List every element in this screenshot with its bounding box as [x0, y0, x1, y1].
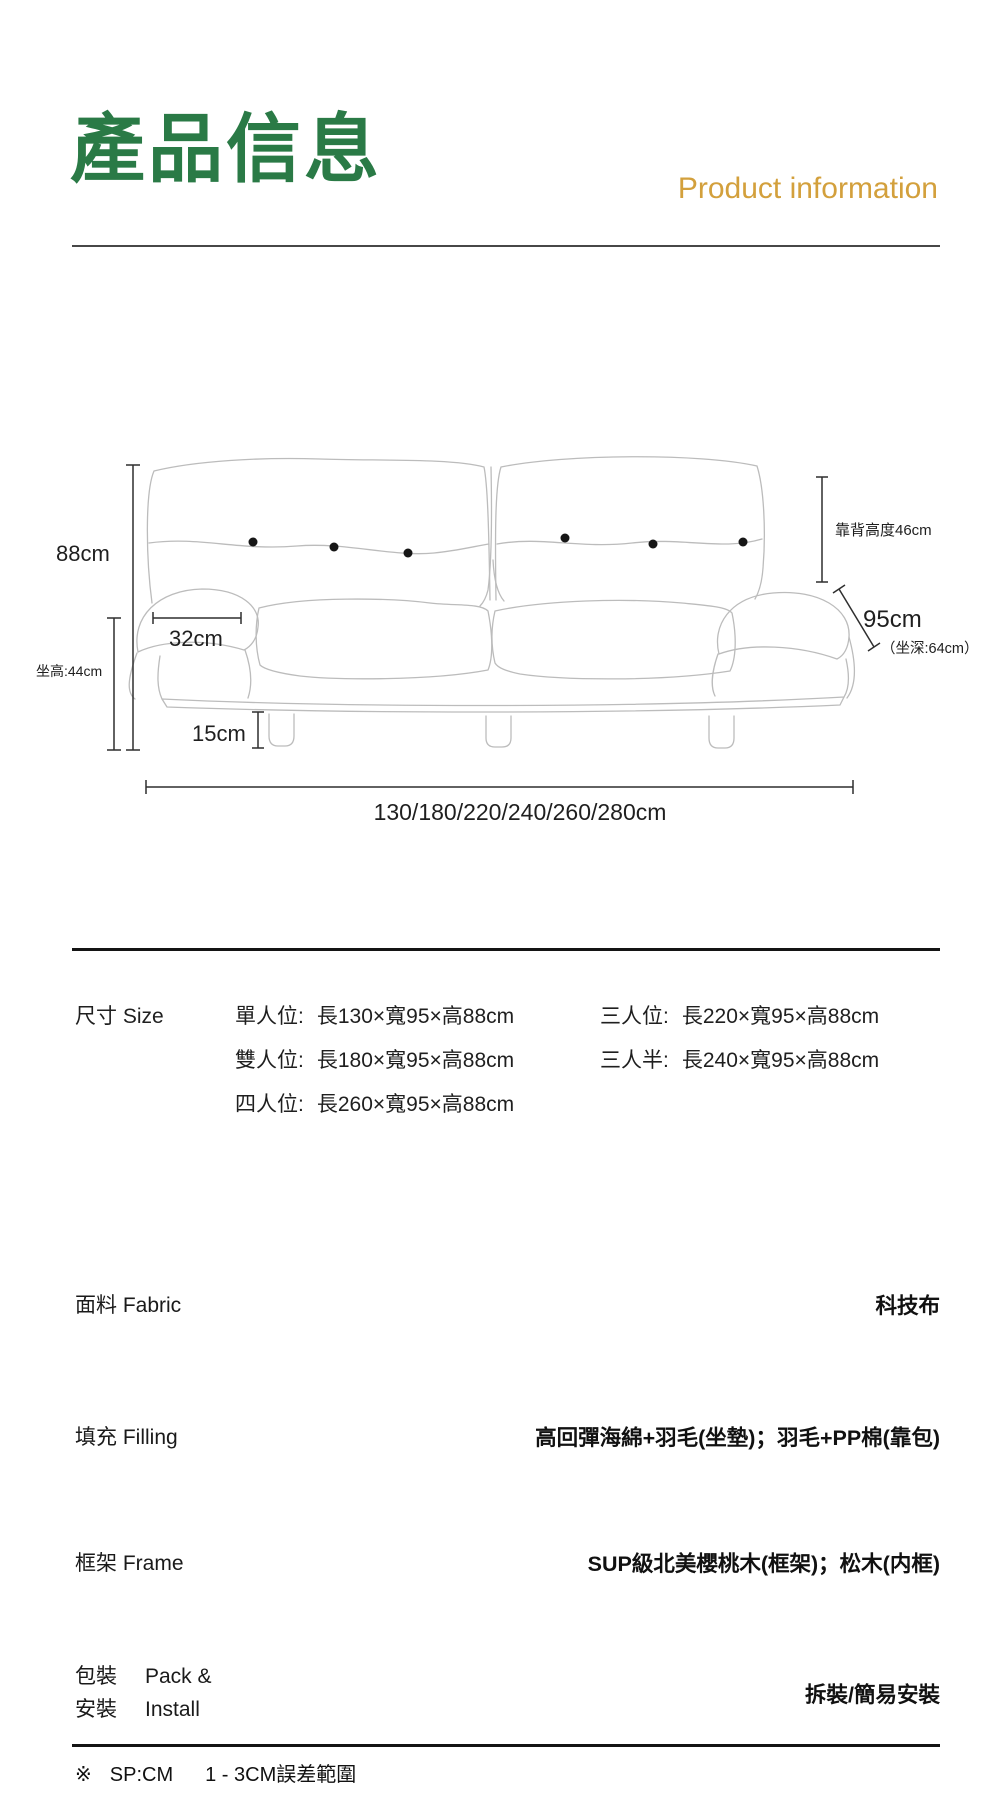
- unit-note: SP:CM: [110, 1764, 173, 1787]
- page-title: 產品信息: [70, 110, 382, 189]
- product-info-page: 產品信息 Product information: [0, 0, 1000, 1813]
- sofa-back-right-seam: [497, 539, 762, 545]
- dim-line-length: [146, 780, 853, 794]
- sofa-base: [162, 697, 844, 712]
- dim-label-leg-height: 15cm: [192, 721, 246, 746]
- sofa-back-left: [147, 459, 490, 604]
- tolerance-note: ※ SP:CM 1 - 3CM誤差範圍: [75, 1758, 356, 1787]
- size-variant-dims: 長130×寬95×高88cm: [317, 995, 514, 1039]
- sofa-arm-right-panel: [712, 637, 854, 698]
- frame-value: SUP級北美櫻桃木(框架)；松木(内框): [588, 1547, 940, 1578]
- frame-row: 框架 Frame SUP級北美櫻桃木(框架)；松木(内框): [75, 1544, 940, 1580]
- filling-value: 高回彈海綿+羽毛(坐墊)；羽毛+PP棉(靠包): [535, 1421, 940, 1452]
- page-subtitle-en: Product information: [678, 172, 938, 206]
- sofa-line-art: [129, 457, 854, 748]
- dim-line-total-height: [126, 465, 140, 750]
- pack-install-labels: 包裝 安裝 Pack & Install: [75, 1660, 212, 1726]
- sofa-skirt: [158, 656, 849, 699]
- dim-line-leg-height: [252, 712, 264, 748]
- pack-label-zh-line1: 包裝: [75, 1660, 117, 1693]
- sofa-back-split: [480, 467, 504, 606]
- dim-label-total-height: 88cm: [56, 541, 110, 566]
- size-variant-dims: 長220×寬95×高88cm: [682, 995, 879, 1039]
- sofa-back-left-seam: [149, 541, 489, 554]
- size-column-1: 單人位: 長130×寬95×高88cm 雙人位: 長180×寬95×高88cm …: [235, 995, 514, 1127]
- dim-label-back-height: 靠背高度46cm: [835, 522, 932, 539]
- size-row: 單人位: 長130×寬95×高88cm: [235, 995, 514, 1039]
- size-variant-name: 三人半:: [600, 1039, 669, 1083]
- dim-label-lengths: 130/180/220/240/260/280cm: [374, 799, 667, 825]
- size-variant-name: 單人位:: [235, 995, 304, 1039]
- frame-label: 框架 Frame: [75, 1547, 184, 1577]
- dim-line-seat-height: [107, 618, 121, 750]
- fabric-row: 面料 Fabric 科技布: [75, 1286, 940, 1322]
- size-row: 雙人位: 長180×寬95×高88cm: [235, 1039, 514, 1083]
- filling-row: 填充 Filling 高回彈海綿+羽毛(坐墊)；羽毛+PP棉(靠包): [75, 1418, 940, 1454]
- size-variant-name: 四人位:: [235, 1083, 304, 1127]
- size-row: 四人位: 長260×寬95×高88cm: [235, 1083, 514, 1127]
- sofa-dimension-diagram: 88cm 坐高:44cm 32cm 15cm 130/180/220/240/2…: [0, 440, 1000, 840]
- section-divider-top: [72, 948, 940, 951]
- size-row: 三人半: 長240×寬95×高88cm: [600, 1039, 879, 1083]
- header-divider: [72, 245, 940, 247]
- filling-label: 填充 Filling: [75, 1421, 178, 1451]
- size-column-2: 三人位: 長220×寬95×高88cm 三人半: 長240×寬95×高88cm: [600, 995, 879, 1083]
- fabric-value: 科技布: [875, 1289, 940, 1320]
- size-section-label: 尺寸 Size: [75, 995, 164, 1039]
- dim-line-arm-width: [153, 612, 241, 624]
- sofa-seat-right: [492, 600, 735, 678]
- dim-line-back-height: [816, 477, 828, 582]
- pack-label-en-line1: Pack &: [145, 1660, 212, 1693]
- sofa-arm-left-panel: [129, 650, 250, 699]
- pack-value: 拆裝/簡易安裝: [805, 1678, 940, 1709]
- size-variant-name: 三人位:: [600, 995, 669, 1039]
- tolerance-range: 1 - 3CM誤差範圍: [205, 1758, 356, 1787]
- pack-install-row: 包裝 安裝 Pack & Install 拆裝/簡易安裝: [75, 1660, 940, 1726]
- footer-divider: [72, 1744, 940, 1747]
- pack-label-zh: 包裝 安裝: [75, 1660, 117, 1726]
- size-variant-dims: 長240×寬95×高88cm: [682, 1039, 879, 1083]
- pack-label-en: Pack & Install: [145, 1660, 212, 1726]
- size-variant-name: 雙人位:: [235, 1039, 304, 1083]
- size-variant-dims: 長260×寬95×高88cm: [317, 1083, 514, 1127]
- pack-label-zh-line2: 安裝: [75, 1693, 117, 1726]
- sofa-seat-left: [256, 599, 492, 679]
- sofa-arm-right: [717, 592, 849, 659]
- dim-label-seat-depth: （坐深:64cm）: [881, 640, 979, 657]
- sofa-legs: [269, 714, 734, 748]
- pack-label-en-line2: Install: [145, 1693, 212, 1726]
- size-row: 三人位: 長220×寬95×高88cm: [600, 995, 879, 1039]
- dim-label-seat-height: 坐高:44cm: [36, 663, 102, 679]
- sofa-back-right: [496, 457, 765, 600]
- fabric-label: 面料 Fabric: [75, 1289, 181, 1319]
- dim-label-depth: 95cm: [863, 606, 922, 633]
- size-variant-dims: 長180×寬95×高88cm: [317, 1039, 514, 1083]
- reference-mark: ※: [75, 1762, 92, 1787]
- dim-label-arm-width: 32cm: [169, 626, 223, 651]
